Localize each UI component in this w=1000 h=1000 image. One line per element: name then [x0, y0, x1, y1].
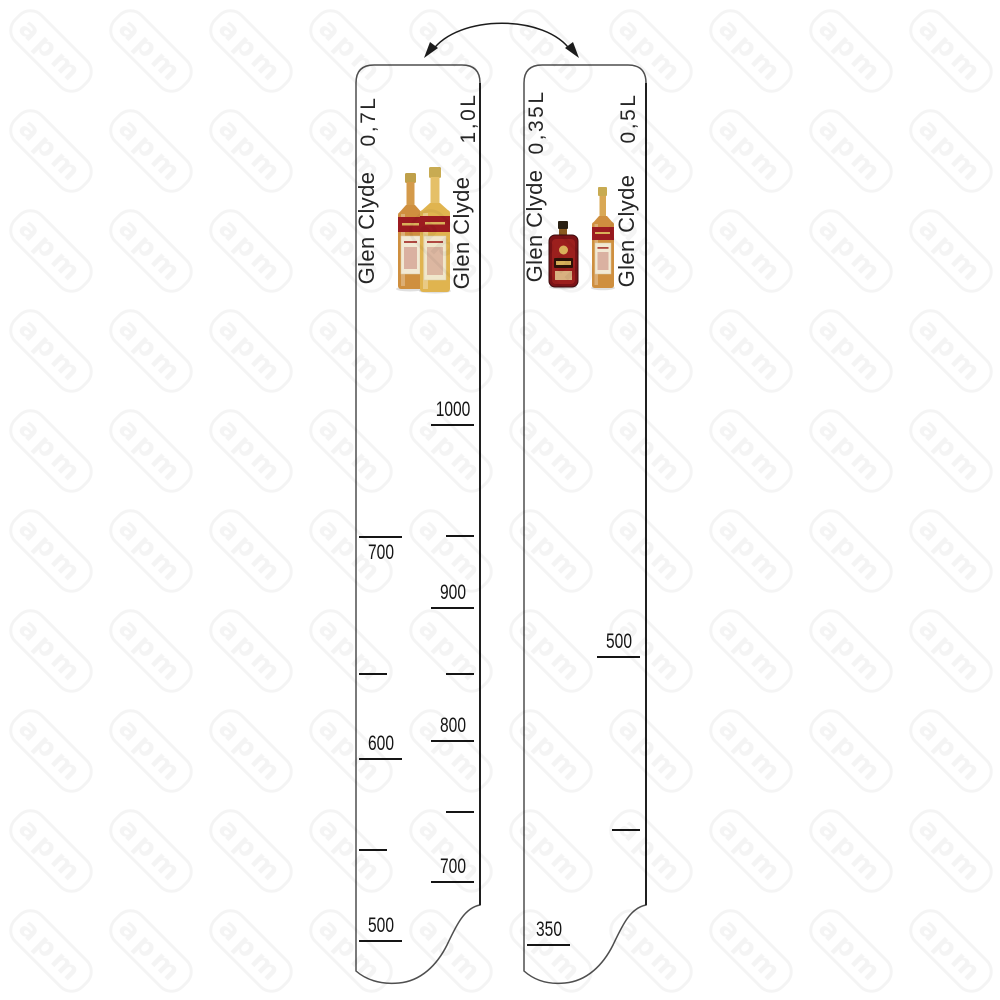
scale-mark-value: 700: [368, 542, 394, 564]
scale-mark-value: 600: [368, 733, 394, 755]
scale-mark: [446, 673, 474, 676]
scale-mark: [359, 673, 387, 676]
scale-mark: [612, 829, 640, 832]
scale-mark: [431, 740, 474, 743]
scale-mark: [431, 881, 474, 884]
scale-mark: [446, 535, 474, 538]
scale-mark-value: 500: [368, 915, 394, 937]
bar-ruler-product-image: 0,7L 1,0L 0,35L 0,5L Glen Clyde Glen Cly…: [0, 0, 1000, 1000]
scale-mark-value: 1000: [435, 399, 470, 421]
scale-marks-layer: 7006005001000900800700350500: [0, 0, 1000, 1000]
scale-mark: [597, 656, 640, 659]
scale-mark: [359, 940, 402, 943]
scale-mark-value: 350: [536, 919, 562, 941]
scale-mark: [431, 424, 474, 427]
scale-mark-value: 700: [440, 856, 466, 878]
scale-mark: [359, 758, 402, 761]
scale-mark: [446, 811, 474, 814]
scale-mark-value: 900: [440, 582, 466, 604]
scale-mark: [359, 536, 402, 539]
scale-mark-value: 500: [606, 631, 632, 653]
scale-mark: [359, 849, 387, 852]
scale-mark: [431, 607, 474, 610]
scale-mark: [527, 944, 570, 947]
scale-mark-value: 800: [440, 715, 466, 737]
